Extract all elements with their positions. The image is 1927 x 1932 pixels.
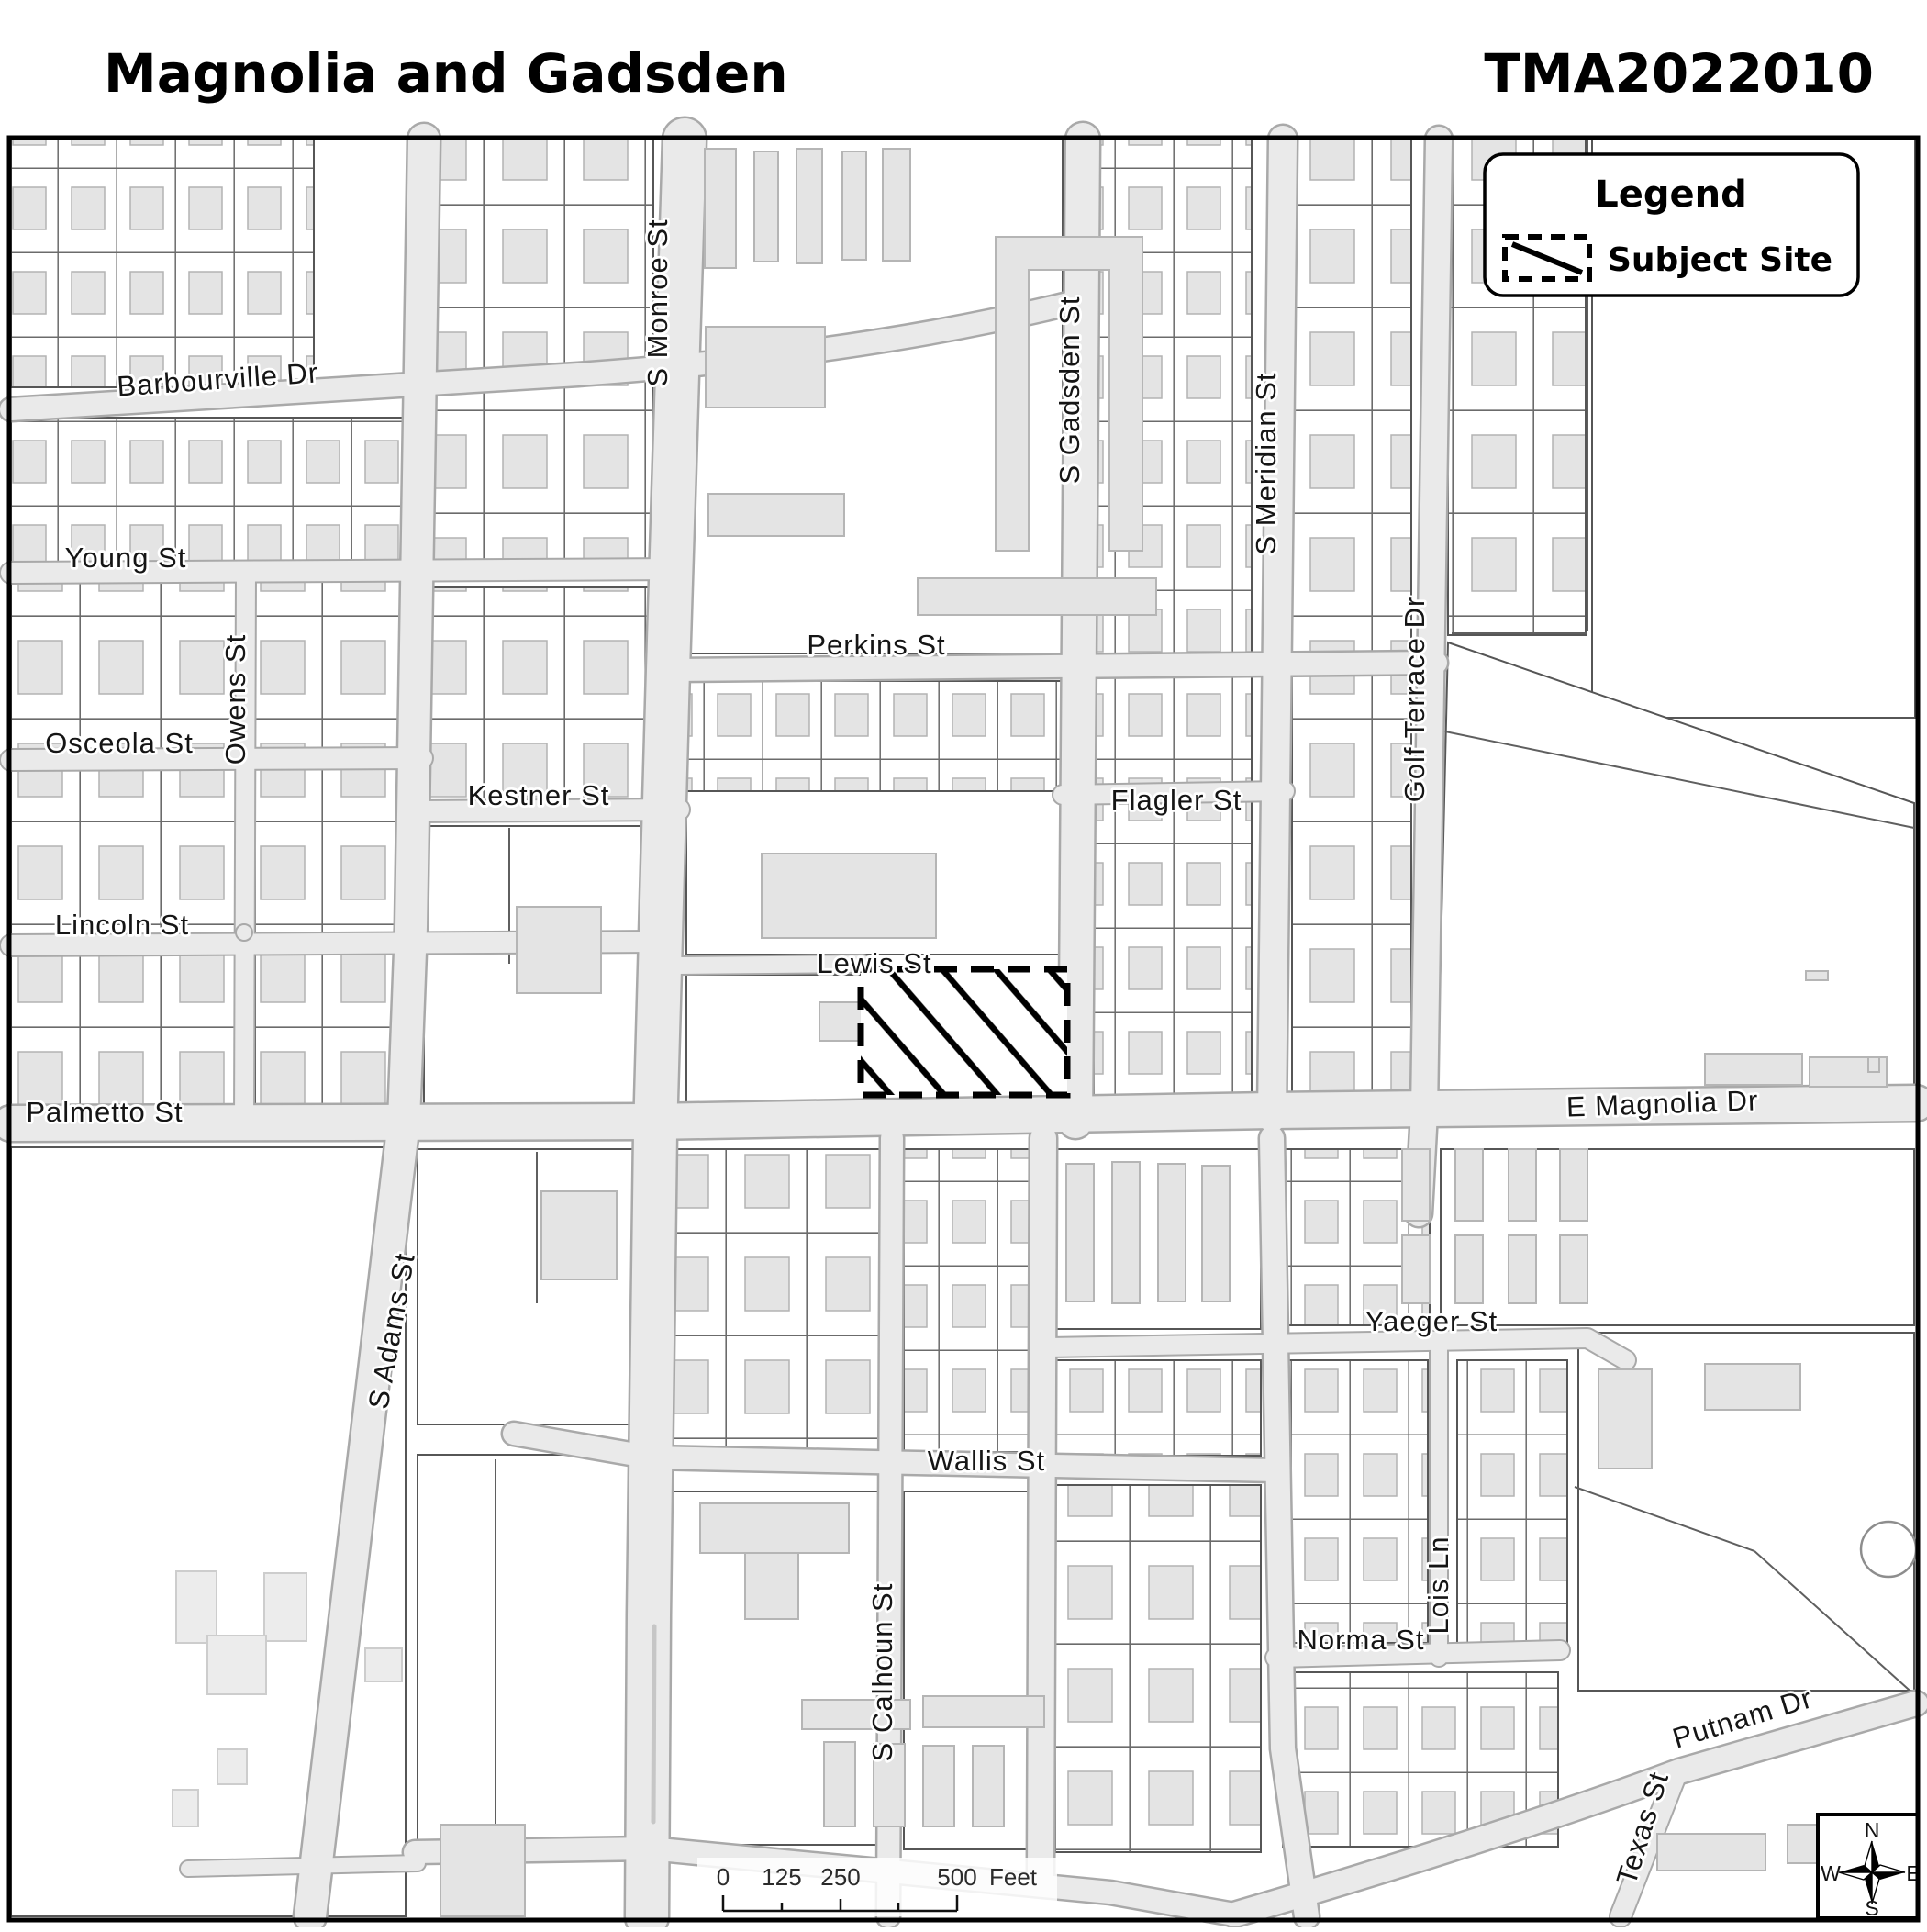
street-label-norma-st: Norma St bbox=[1298, 1624, 1425, 1656]
compass-s-label: S bbox=[1865, 1896, 1878, 1920]
street-label-golf-terrace-dr: Golf Terrace Dr bbox=[1398, 597, 1431, 803]
street-label-s-gadsden-st: S Gadsden St bbox=[1053, 296, 1086, 484]
page-title: Magnolia and Gadsden bbox=[104, 42, 788, 105]
legend: Legend Subject Site bbox=[1485, 154, 1858, 296]
scale-tick-0: 0 bbox=[717, 1863, 730, 1891]
street-label-s-calhoun-st: S Calhoun St bbox=[866, 1583, 898, 1762]
scale-tick-500: 500 bbox=[937, 1863, 976, 1891]
street-label-e-magnolia-dr: E Magnolia Dr bbox=[1565, 1084, 1759, 1122]
street-label-s-meridian-st: S Meridian St bbox=[1250, 372, 1282, 554]
street-label-young-st: Young St bbox=[65, 542, 187, 574]
street-label-perkins-st: Perkins St bbox=[807, 629, 945, 661]
street-label-palmetto-st: Palmetto St bbox=[26, 1096, 183, 1128]
street-label-yaeger-st: Yaeger St bbox=[1365, 1305, 1498, 1337]
scale-tick-125: 125 bbox=[762, 1863, 801, 1891]
project-id: TMA2022010 bbox=[1484, 42, 1874, 105]
street-label-owens-st: Owens St bbox=[219, 634, 251, 765]
street-label-kestner-st: Kestner St bbox=[468, 779, 610, 811]
street-label-wallis-st: Wallis St bbox=[928, 1445, 1045, 1477]
compass-w-label: W bbox=[1821, 1861, 1841, 1885]
street-label-osceola-st: Osceola St bbox=[45, 727, 194, 759]
site-location-map: Magnolia and Gadsden TMA2022010 bbox=[0, 0, 1927, 1927]
compass-n-label: N bbox=[1865, 1818, 1880, 1842]
scale-unit-label: Feet bbox=[989, 1863, 1038, 1891]
street-label-lewis-st: Lewis St bbox=[817, 947, 931, 979]
subject-site-polygon bbox=[861, 969, 1067, 1095]
legend-item-label: Subject Site bbox=[1608, 241, 1832, 279]
street-label-flagler-st: Flagler St bbox=[1111, 784, 1242, 816]
subject-site-legend-icon bbox=[1505, 237, 1589, 279]
legend-title: Legend bbox=[1595, 173, 1747, 216]
street-label-lois-ln: Lois Ln bbox=[1422, 1536, 1454, 1635]
scale-bar: 0 125 250 500 Feet bbox=[697, 1858, 1057, 1916]
street-label-lincoln-st: Lincoln St bbox=[55, 909, 189, 941]
street-label-s-monroe-st: S Monroe St bbox=[641, 218, 674, 386]
compass-rose: N E S W bbox=[1818, 1815, 1921, 1920]
scale-tick-250: 250 bbox=[820, 1863, 860, 1891]
